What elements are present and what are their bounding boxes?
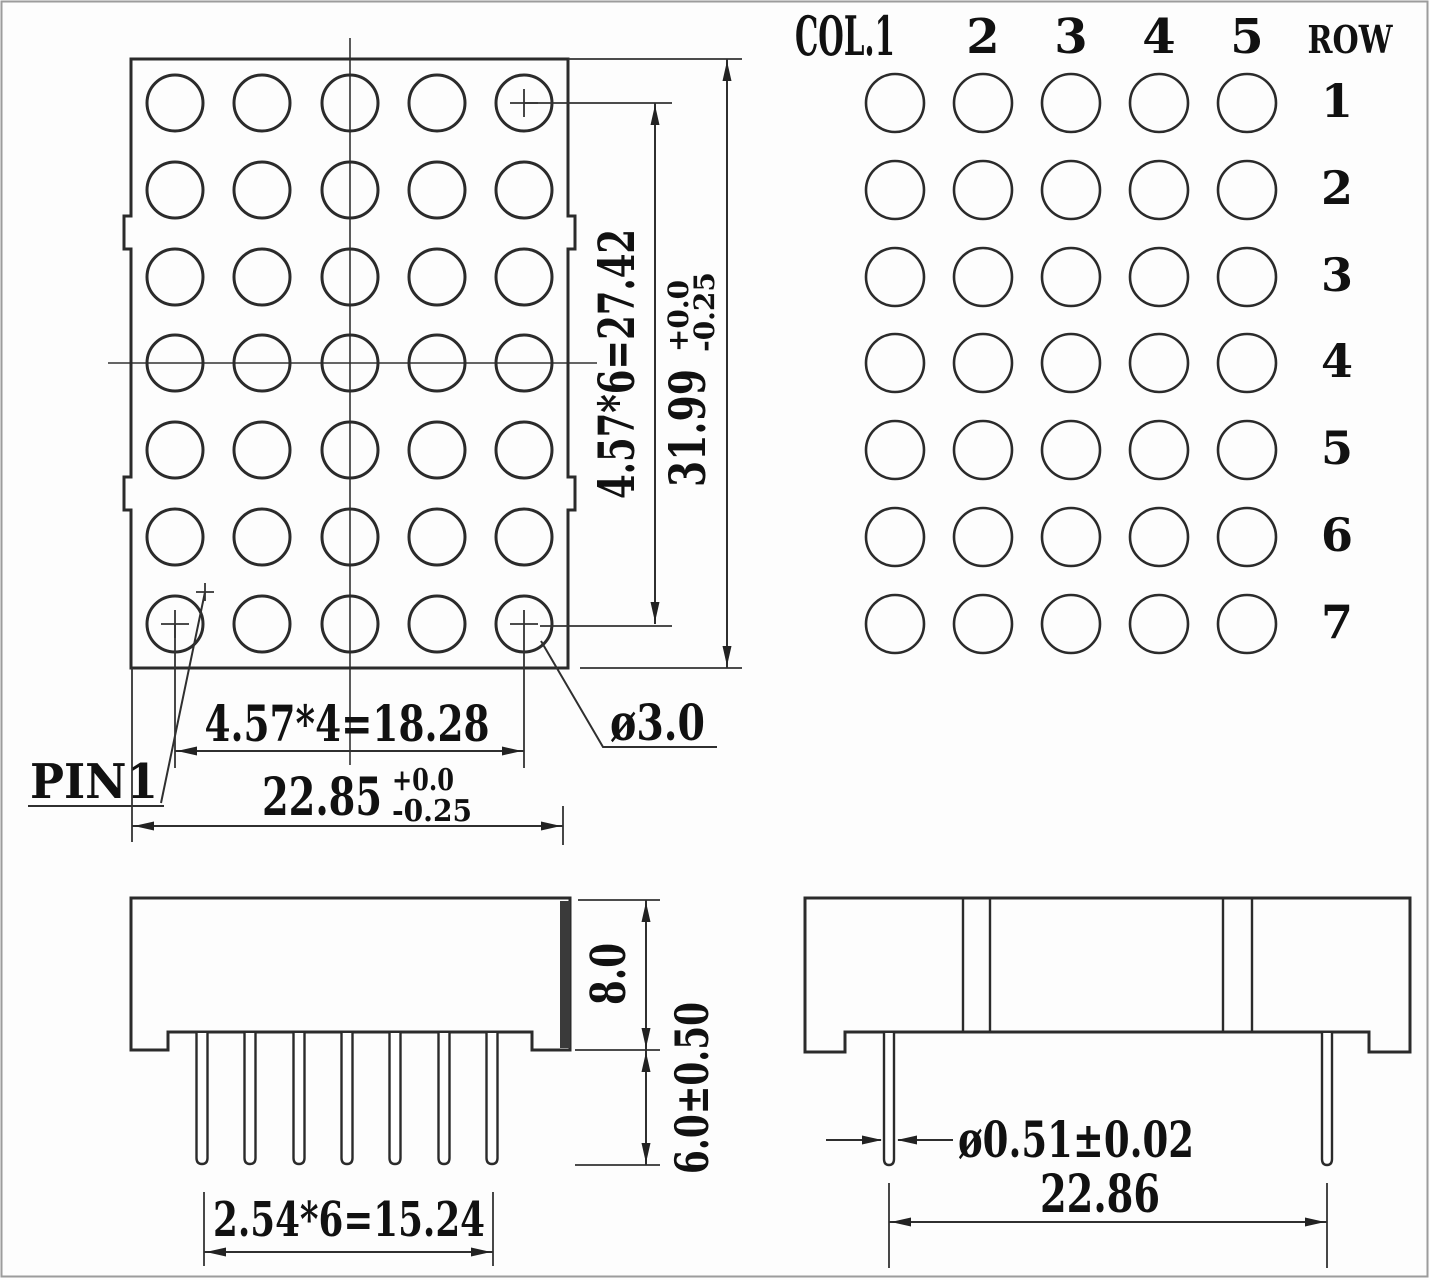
- pin-map-dot: [954, 595, 1012, 653]
- dimension-arrowhead: [891, 1218, 911, 1227]
- row-number-label: 6: [1321, 508, 1353, 562]
- pin-map-dot: [1218, 421, 1276, 479]
- col-pitch-text: 4.57*4=18.28: [205, 694, 490, 753]
- row-pitch-text: 4.57*6=27.42: [587, 229, 646, 499]
- pin-map-dot: [1218, 595, 1276, 653]
- column-number-label: 4: [1142, 9, 1175, 65]
- dimension-arrowhead: [1305, 1218, 1325, 1227]
- led-dot: [147, 509, 203, 565]
- pin-map-dot-grid: [866, 74, 1276, 653]
- component-pin: [197, 1033, 208, 1164]
- pin1-label: PIN1: [30, 754, 158, 810]
- drawing-canvas: PIN1 4.57*6=27.42 31.99 +0.0 -0.25 4.: [0, 0, 1430, 1280]
- pin-map-dot: [1042, 334, 1100, 392]
- pin-map-dot: [1130, 334, 1188, 392]
- dimension-arrowhead: [642, 902, 651, 922]
- dimension-arrowhead: [862, 1136, 882, 1145]
- led-dot: [409, 162, 465, 218]
- pin-map-dot: [866, 248, 924, 306]
- row-number-labels: 1234567: [1321, 74, 1353, 649]
- component-pin: [245, 1033, 256, 1164]
- dimension-arrowhead: [651, 602, 660, 622]
- component-pin: [294, 1033, 305, 1164]
- pin-map-dot: [1218, 161, 1276, 219]
- pin-map-dot: [1130, 161, 1188, 219]
- dim-body-height: 8.0: [575, 900, 660, 1050]
- pin-map-dot: [1218, 334, 1276, 392]
- led-dot: [496, 422, 552, 478]
- column-number-label: 5: [1230, 9, 1263, 65]
- pin-map-dot: [1042, 421, 1100, 479]
- row-header-label: ROW: [1308, 17, 1394, 62]
- pin-map-dot: [1130, 508, 1188, 566]
- dimension-arrowhead: [541, 822, 561, 831]
- width-value-text: 22.85: [262, 767, 382, 828]
- pin-pitch-text: 2.54*6=15.24: [213, 1192, 485, 1248]
- column-number-label: 2: [966, 9, 999, 65]
- dim-pin-diameter: ø0.51±0.02: [826, 1110, 1194, 1169]
- component-pin: [342, 1033, 353, 1164]
- pin-map-dot: [1218, 74, 1276, 132]
- pin-map-dot: [866, 421, 924, 479]
- pin-map-dot: [1130, 421, 1188, 479]
- pin-map-dot: [954, 161, 1012, 219]
- pin-map-dot: [866, 161, 924, 219]
- pin-map-dot: [866, 334, 924, 392]
- pin-map-dot: [954, 508, 1012, 566]
- pin-map-dot: [866, 508, 924, 566]
- column-number-labels: 2345: [966, 9, 1263, 65]
- dimension-arrowheads: [134, 61, 1325, 1257]
- row-number-label: 5: [1321, 421, 1353, 475]
- led-dot: [409, 596, 465, 652]
- led-dot: [234, 422, 290, 478]
- row-number-label: 7: [1321, 595, 1353, 649]
- led-dot: [496, 162, 552, 218]
- led-dot: [409, 509, 465, 565]
- side-body-outline: [131, 898, 570, 1050]
- led-dot: [409, 422, 465, 478]
- pin-map-dot: [1130, 595, 1188, 653]
- component-pin: [1322, 1033, 1332, 1165]
- led-dot: [496, 509, 552, 565]
- led-dot: [234, 75, 290, 131]
- side-view-pins: [197, 1033, 498, 1164]
- dimension-arrowhead: [723, 646, 732, 666]
- component-pin: [884, 1033, 894, 1165]
- pin-diameter-text: ø0.51±0.02: [958, 1110, 1194, 1169]
- pin-map-dot: [1042, 74, 1100, 132]
- pin-map-dot: [954, 74, 1012, 132]
- row-number-label: 1: [1321, 74, 1353, 128]
- led-dot: [234, 249, 290, 305]
- front-view: PIN1 4.57*6=27.42 31.99 +0.0 -0.25 4.: [28, 38, 742, 845]
- pin-map-dot: [866, 74, 924, 132]
- dimension-arrowhead: [642, 1052, 651, 1072]
- led-dot: [234, 162, 290, 218]
- dimension-arrowhead: [206, 1248, 226, 1257]
- dimension-arrowhead: [471, 1248, 491, 1257]
- led-dot: [234, 509, 290, 565]
- pin-map-dot: [954, 248, 1012, 306]
- dim-pin-pitch: 2.54*6=15.24: [204, 1192, 493, 1266]
- pin-map-dot: [1042, 161, 1100, 219]
- pin1-cross-marker: [196, 583, 214, 601]
- led-dot: [147, 75, 203, 131]
- dimension-arrowhead: [897, 1136, 917, 1145]
- dim-row-pitch: 4.57*6=27.42: [524, 103, 672, 626]
- side-view: 8.0 6.0±0.50 2.54*6=15.24: [131, 898, 719, 1266]
- dimension-arrowhead: [651, 105, 660, 125]
- end-body-segment-lines: [963, 898, 1252, 1032]
- dim-pin-span: 22.86: [889, 1164, 1327, 1268]
- pin-map-dot: [954, 421, 1012, 479]
- pin-map-dot: [1218, 508, 1276, 566]
- dimension-arrowhead: [177, 747, 197, 756]
- width-tol-plus-text: +0.0: [392, 763, 454, 798]
- end-view: ø0.51±0.02 22.86: [805, 898, 1410, 1268]
- pin-map: COL.1 ROW 2345 1234567: [795, 4, 1394, 653]
- dimension-arrowhead: [134, 822, 154, 831]
- height-value-text: 31.99: [658, 369, 717, 487]
- dot-diameter-text: ø3.0: [610, 693, 705, 752]
- dimension-arrowhead: [642, 1143, 651, 1163]
- pin-map-dot: [1218, 248, 1276, 306]
- led-dot: [147, 422, 203, 478]
- led-dot: [496, 249, 552, 305]
- dimension-arrowhead: [502, 747, 522, 756]
- component-pin: [487, 1033, 498, 1164]
- pin-span-text: 22.86: [1040, 1164, 1160, 1225]
- height-tol-minus-text: -0.25: [688, 272, 721, 352]
- led-dot: [409, 249, 465, 305]
- pin-length-text: 6.0±0.50: [665, 1002, 719, 1174]
- pin-map-dot: [1130, 74, 1188, 132]
- side-body-shading: [560, 901, 570, 1048]
- row-number-label: 2: [1321, 161, 1353, 215]
- width-tol-minus-text: -0.25: [392, 794, 472, 829]
- pin-map-dot: [866, 595, 924, 653]
- end-body-outline: [805, 898, 1410, 1052]
- body-height-text: 8.0: [581, 943, 637, 1005]
- component-pin: [390, 1033, 401, 1164]
- col-header-label: COL.1: [795, 4, 895, 68]
- row-number-label: 3: [1321, 248, 1353, 302]
- pin-map-dot: [1130, 248, 1188, 306]
- row-number-label: 4: [1321, 334, 1353, 388]
- datasheet-drawing: PIN1 4.57*6=27.42 31.99 +0.0 -0.25 4.: [0, 0, 1430, 1280]
- column-number-label: 3: [1054, 9, 1087, 65]
- led-dot: [147, 249, 203, 305]
- pin-map-dot: [1042, 248, 1100, 306]
- component-pin: [439, 1033, 450, 1164]
- pin-map-dot: [954, 334, 1012, 392]
- pin-map-dot: [1042, 595, 1100, 653]
- led-dot: [147, 162, 203, 218]
- dimension-arrowhead: [642, 1028, 651, 1048]
- pin-map-dot: [1042, 508, 1100, 566]
- dimension-arrowhead: [723, 61, 732, 81]
- led-dot: [234, 596, 290, 652]
- led-dot: [409, 75, 465, 131]
